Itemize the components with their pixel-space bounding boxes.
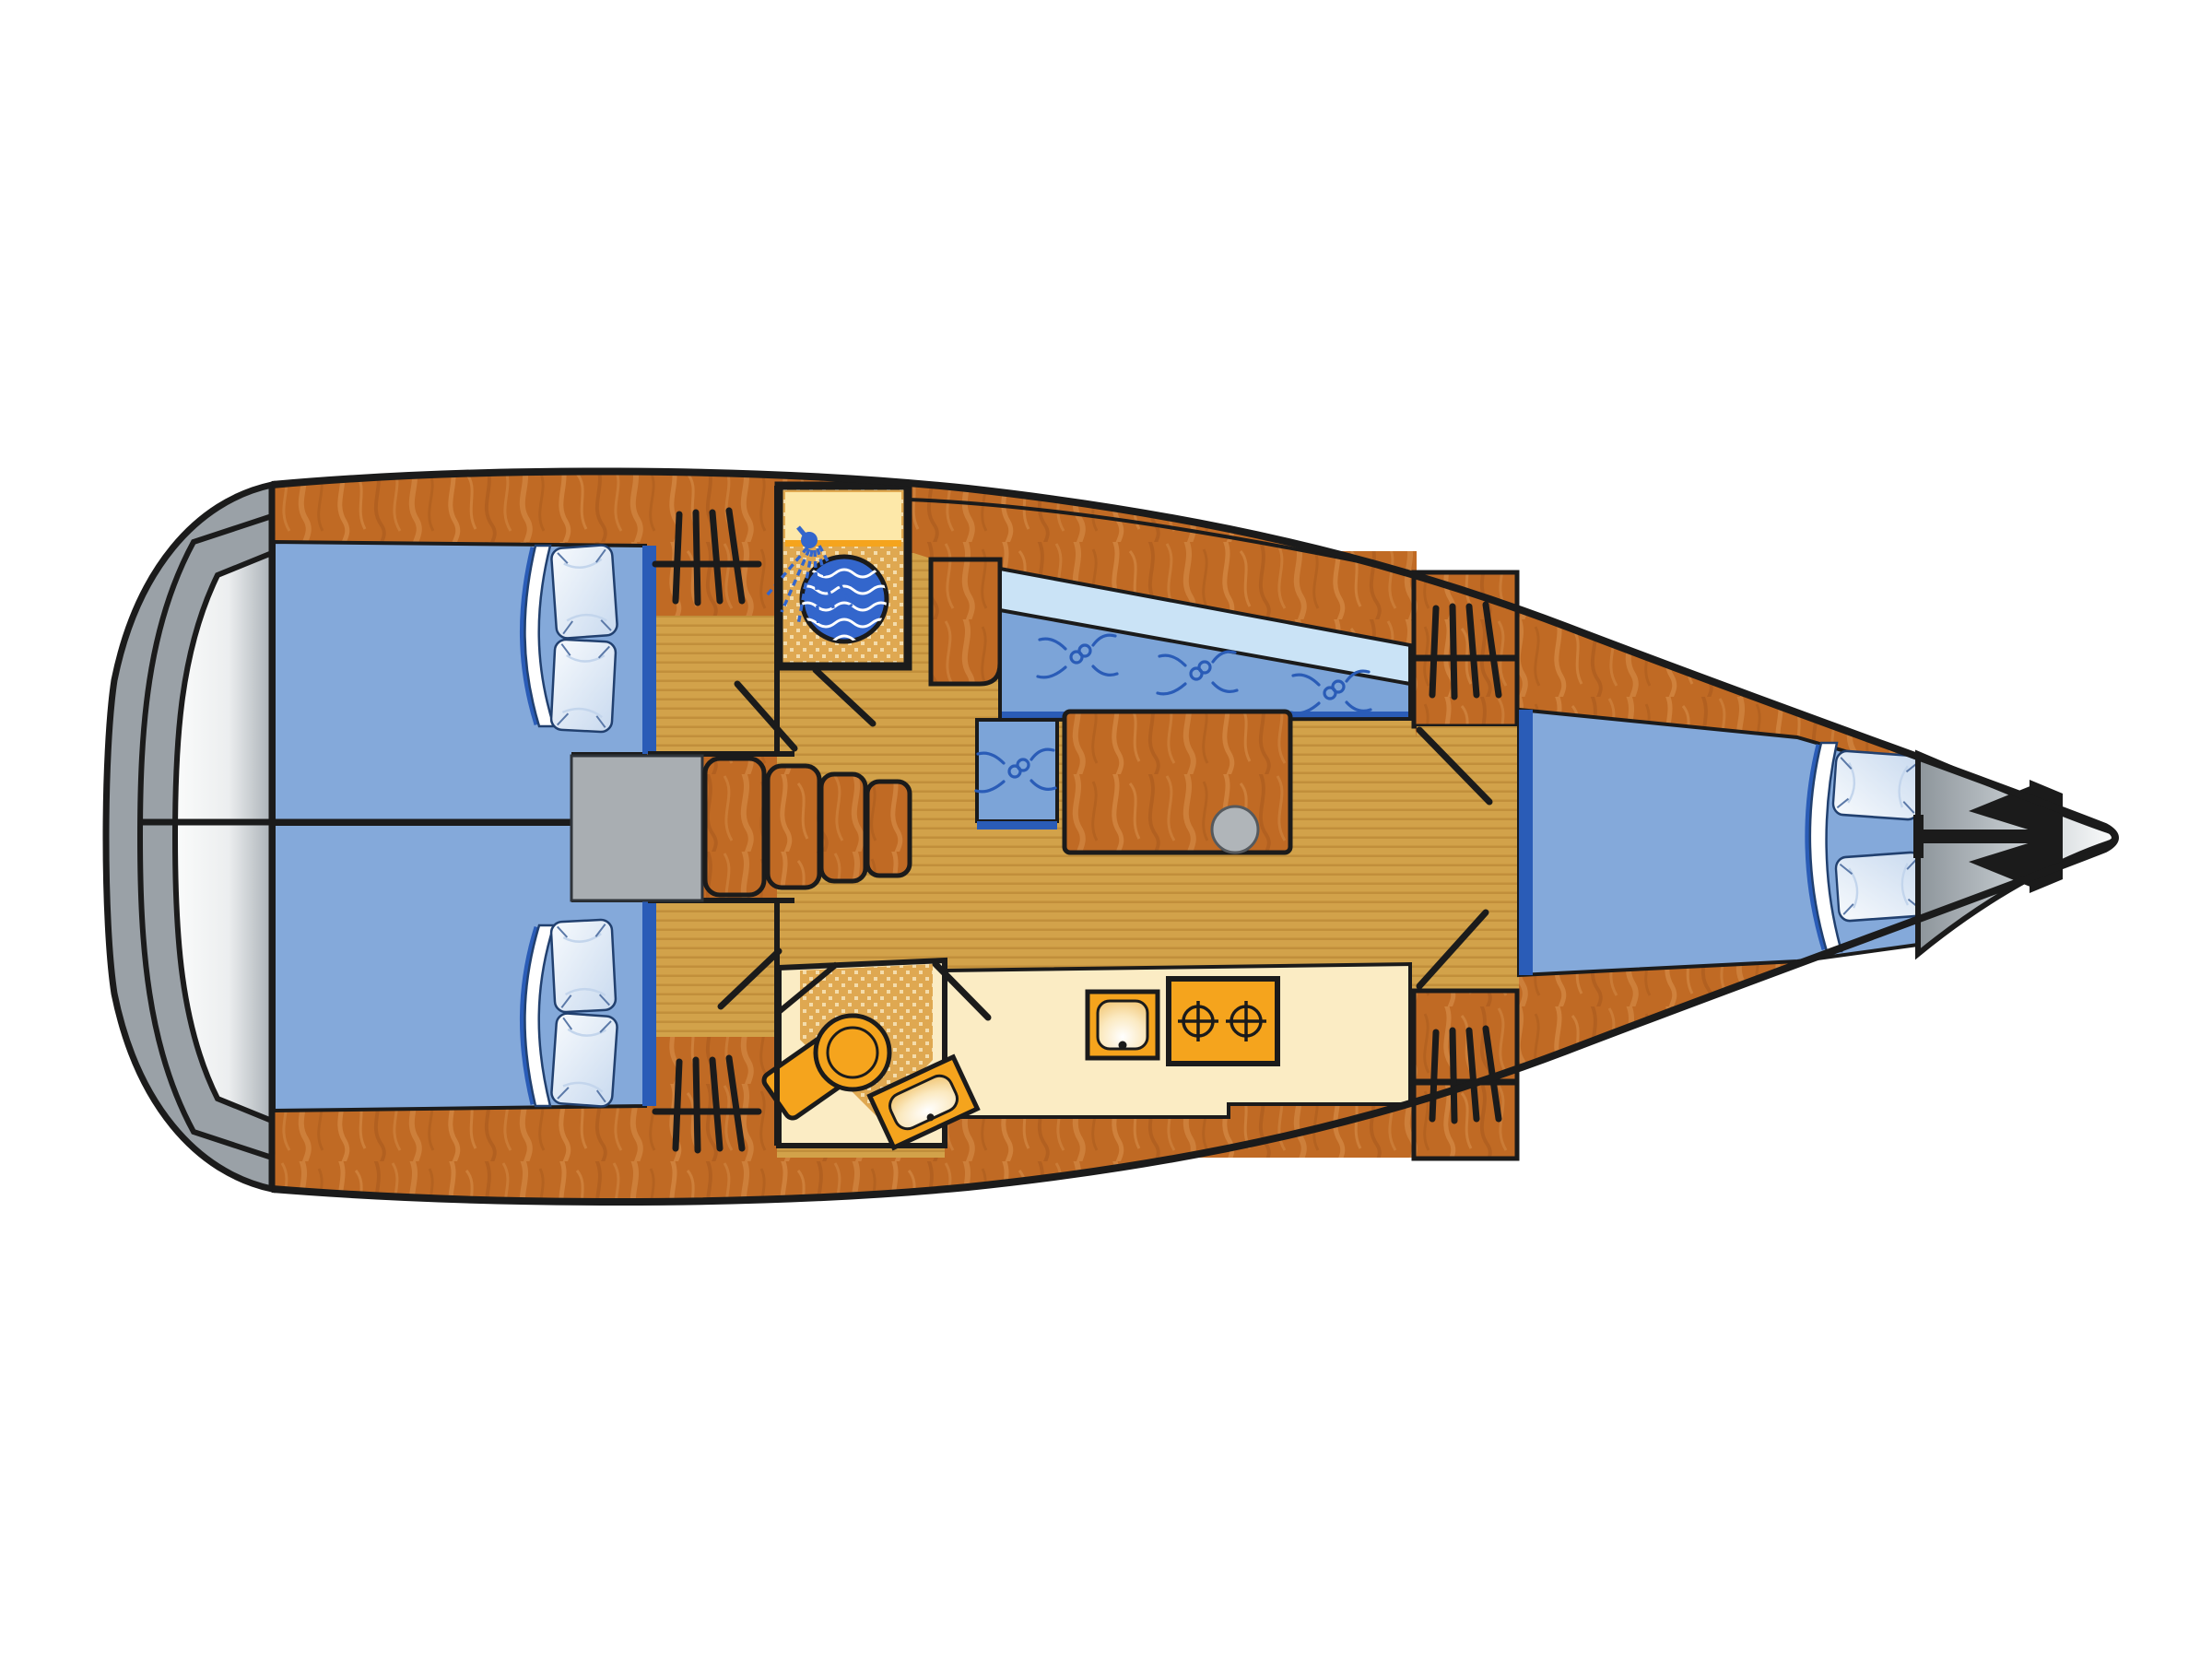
galley-sink: [1088, 992, 1158, 1058]
galley: [945, 964, 1410, 1117]
swim-platform: [106, 485, 272, 1189]
yacht-floorplan-diagram: [0, 0, 2212, 1659]
galley-stove: [1169, 979, 1277, 1064]
berth-edge: [642, 546, 656, 754]
faucet: [1119, 1041, 1127, 1050]
yacht-floorplan-page: [0, 0, 2212, 1659]
locker-upper: [1414, 572, 1517, 726]
engine-box: [571, 756, 702, 900]
settee-cabinet: [931, 559, 1000, 684]
bow-corridor-floor: [1417, 726, 1519, 991]
vberth-edge: [1519, 710, 1533, 975]
cabin-floor: [656, 616, 777, 754]
table-pedestal: [1212, 806, 1258, 853]
chaise-seat: [977, 720, 1057, 821]
berth-edge: [642, 900, 656, 1106]
companionway: [571, 756, 910, 900]
chaise-edge: [977, 821, 1057, 829]
